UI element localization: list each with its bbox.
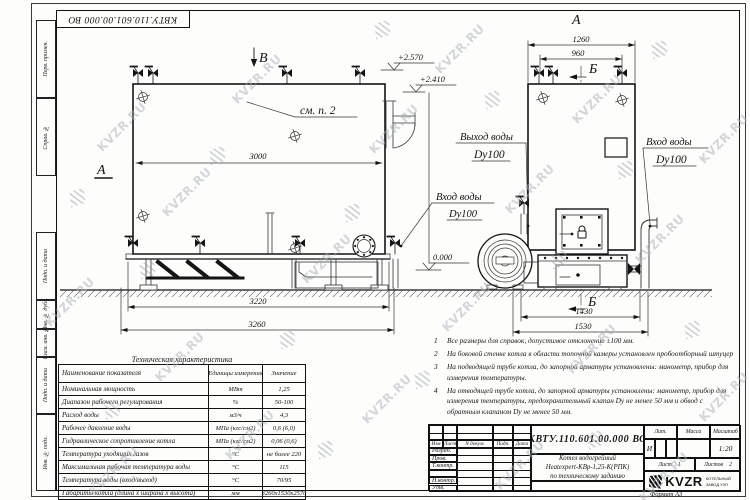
kvzr-logo-icon: [649, 475, 662, 489]
inlet-size-side: Dy100: [448, 209, 478, 220]
tech-row-name: Номинальная мощность: [59, 383, 209, 396]
view-a-label: А: [571, 13, 581, 28]
valve-icon: [546, 67, 559, 85]
tech-row-name: Температура воды (вход/выход): [59, 474, 209, 487]
tech-row-name: Габариты котла (длина х ширина х высота): [59, 487, 209, 499]
tech-row-name: Температура уходящих газов: [59, 448, 209, 461]
section-b-bottom-label: Б: [587, 295, 596, 310]
notes: 1Все размеры для справок, допустимое отк…: [434, 336, 734, 420]
elevation-mid-label: +2.410: [420, 74, 446, 84]
ash-box: [538, 255, 627, 290]
inlet-valve-icon: [388, 237, 401, 255]
note-item: 4На отводящей трубе котла, до запорной а…: [434, 386, 734, 418]
dim-3000: 3000: [249, 151, 268, 161]
grate-drive-levers: [147, 260, 243, 278]
valve-icon: [280, 67, 293, 85]
tb-row-tkontr: Т.контр.: [429, 462, 457, 469]
inlet-label-front: Вход воды: [646, 137, 692, 148]
skid-legs: [140, 259, 388, 290]
tb-col-izm: Изм: [429, 440, 443, 448]
tb-brand-cell: KVZR КОТЕЛЬНЫЙ ЗАВОД УЗП: [644, 471, 741, 492]
inlet-size-front: Dy100: [655, 154, 687, 166]
valve-icon: [353, 67, 366, 85]
furnace-door: [556, 209, 608, 254]
title-block: Изм Лист N докум. Подп. Дата Разраб. Про…: [428, 424, 740, 491]
tb-mass-header: Масса: [677, 425, 710, 439]
tb-row-utv: Утв.: [429, 485, 457, 493]
section-b-top-label: Б: [588, 62, 597, 77]
dim-3220: 3220: [249, 296, 268, 306]
front-view: А 1260 960 Б: [456, 13, 708, 336]
brand-subtitle: КОТЕЛЬНЫЙ ЗАВОД УЗП: [706, 476, 736, 486]
tb-lit-value: И: [644, 439, 655, 458]
tech-row-name: Диапазон рабочего регулирования: [59, 396, 209, 409]
tech-table: Наименование показателя Единицы измерени…: [58, 364, 306, 500]
tb-scale-value: 1:20: [710, 439, 741, 458]
outlet-label: Выход воды: [460, 132, 513, 143]
tech-row-name: Расход воды: [59, 409, 209, 422]
outlet-pipe: [521, 214, 527, 234]
tb-lit-header: Лит.: [644, 425, 677, 439]
tech-row-name: Максимальная рабочая температура воды: [59, 461, 209, 474]
tb-product-name: Котел водогрейный Heatexpert-КВр-1,25-К(…: [531, 454, 644, 481]
dim-3260: 3260: [248, 319, 267, 329]
valve-icon: [615, 67, 628, 85]
tb-row-prov: Пров.: [429, 455, 457, 462]
valve-icon: [131, 67, 144, 85]
outlet-size: Dy100: [473, 149, 505, 161]
see-note-callout: см. п. 2: [300, 105, 336, 117]
note-item: 2На боковой стенке котла в области топоч…: [434, 349, 734, 360]
dim-960: 960: [572, 48, 586, 58]
valve-icon: [146, 67, 159, 85]
tb-col-sign: Подп.: [493, 440, 513, 448]
valve-icon: [532, 67, 545, 85]
bolt-flange: [353, 235, 375, 257]
view-arrow-b-label: В: [259, 51, 268, 66]
outlet-fitting: [383, 101, 415, 148]
ground-line: [60, 290, 712, 297]
tech-row-name: Гидравлическое сопротивление котла: [59, 435, 209, 448]
tb-sheets-cell: Листов2: [695, 458, 741, 471]
tech-header-units: Единицы измерения: [209, 365, 263, 383]
note-item: 1Все размеры для справок, допустимое отк…: [434, 336, 734, 347]
dim-1260: 1260: [573, 34, 591, 44]
ash-tray: [292, 259, 378, 288]
tb-col-doc: N докум.: [457, 440, 493, 448]
tb-mass-value: [677, 439, 710, 458]
tb-sheet-cell: Лист1: [644, 458, 695, 471]
brand-name: KVZR: [665, 474, 702, 489]
elevation-ground-label: 0.000: [433, 252, 453, 262]
elevation-marks: [381, 63, 469, 270]
drawing-sheet: Перв. примен. Справ. № Подп. и дата Инв.…: [0, 0, 750, 500]
elevation-top-label: +2.570: [398, 52, 424, 62]
tech-header-value: Значение: [263, 365, 305, 383]
tb-col-list: Лист: [443, 440, 457, 448]
tb-col-date: Дата: [513, 440, 531, 448]
section-a-label: А: [96, 163, 106, 178]
tb-row-razrab: Разраб.: [429, 448, 457, 455]
note-item: 3На подводящей трубе котла, до запорной …: [434, 362, 734, 383]
tech-header-name: Наименование показателя: [59, 365, 209, 383]
tech-row-name: Рабочее давление воды: [59, 422, 209, 435]
tb-scale-header: Масштаб: [710, 425, 741, 439]
inlet-label-side: Вход воды: [436, 192, 482, 203]
tech-table-title: Техническая характеристика: [58, 355, 306, 364]
tb-row-nkontr: Н.контр.: [429, 477, 457, 484]
dim-1530: 1530: [575, 321, 593, 331]
tb-doc-number: КВТУ.110.601.00.000 ВО: [531, 425, 644, 454]
